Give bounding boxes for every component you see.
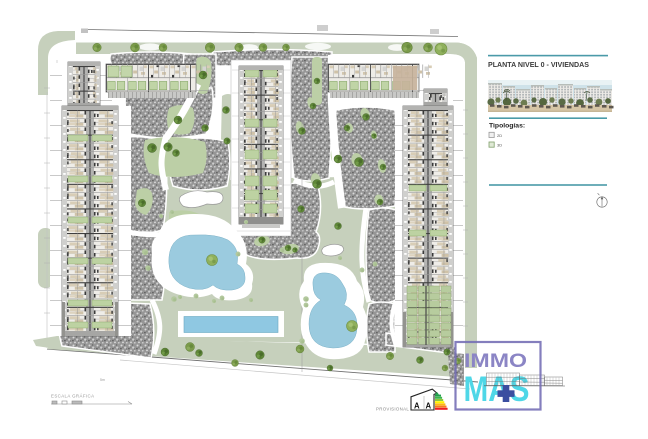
- svg-text:3D: 3D: [497, 143, 502, 148]
- svg-text:5m: 5m: [100, 378, 105, 382]
- svg-text:Tipologías:: Tipologías:: [489, 123, 525, 130]
- svg-text:A: A: [414, 402, 420, 411]
- svg-text:2D: 2D: [497, 133, 502, 138]
- svg-text:PROVISIONAL: PROVISIONAL: [376, 407, 409, 412]
- svg-text:IMMO: IMMO: [464, 351, 527, 372]
- svg-text:A: A: [426, 402, 432, 411]
- svg-text:ESCALA GRÁFICA: ESCALA GRÁFICA: [51, 394, 94, 399]
- svg-text:PLANTA NIVEL 0 - VIVIENDAS: PLANTA NIVEL 0 - VIVIENDAS: [488, 62, 589, 69]
